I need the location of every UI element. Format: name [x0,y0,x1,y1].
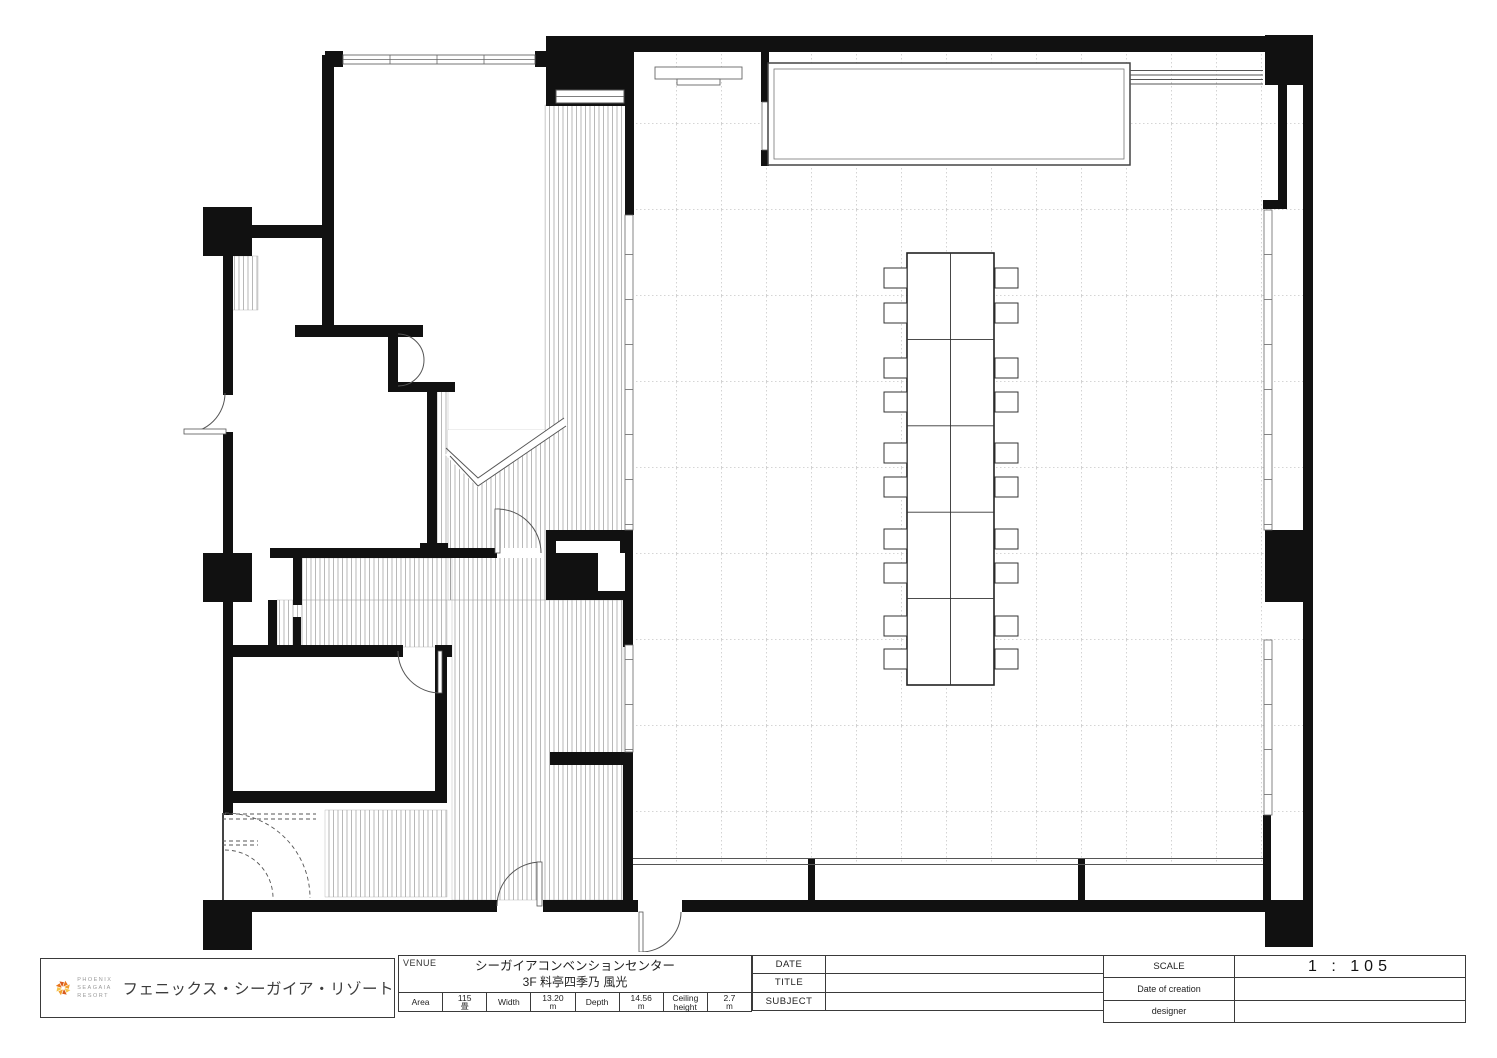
chair [884,443,907,463]
column-bottom-right [1265,900,1313,947]
floor-plan-sheet: PHOENIX SEAGAIA RESORT フェニックス・シーガイア・リゾート… [0,0,1497,1058]
area-label: Area [399,993,443,1012]
venue-name: シーガイアコンベンションセンター 3F 料亭四季乃 風光 [399,959,751,990]
column-bottom-left [203,900,252,950]
scale-value: 1 : 105 [1235,956,1465,977]
chair [884,563,907,583]
date-label: DATE [753,956,826,973]
right-wall [1303,35,1313,947]
chair [884,392,907,412]
top-wall [625,36,1313,52]
room-a-top-wall [295,325,423,337]
chair [995,303,1018,323]
chair [884,358,907,378]
date-of-creation-label: Date of creation [1104,978,1235,999]
title-value [826,974,1104,991]
door-arc-bottom-exit [641,912,681,952]
chair [995,443,1018,463]
left-wall [223,602,233,815]
door-arc-left-wall [185,393,225,433]
chair [995,358,1018,378]
bottom-wall [250,900,497,912]
scale-label: SCALE [1104,956,1235,977]
depth-value: 14.56m [620,993,664,1012]
chair [995,392,1018,412]
meta-table: DATE TITLE SUBJECT [752,955,1105,1011]
logo-box: PHOENIX SEAGAIA RESORT フェニックス・シーガイア・リゾート [40,958,395,1018]
column-mid-right [1265,530,1313,602]
designer-label: designer [1104,1001,1235,1022]
area-value: 115畳 [443,993,487,1012]
subject-value [826,993,1104,1010]
chair [995,649,1018,669]
designer-value [1235,1001,1465,1022]
chair [995,529,1018,549]
room-b-top-wall [223,645,403,657]
door-arc-room-b [398,651,440,693]
ceiling-height-value: 2.7m [708,993,751,1012]
subject-label: SUBJECT [753,993,826,1010]
brand-name-jp: フェニックス・シーガイア・リゾート [122,977,394,999]
left-wall [223,432,233,553]
chair [884,616,907,636]
shutter-dashed-arcs [222,813,316,898]
door-arc-room-a [398,334,424,386]
depth-label: Depth [576,993,620,1012]
column-left-mid [203,553,252,602]
chair [995,268,1018,288]
title-label: TITLE [753,974,826,991]
column-left-upper [203,207,252,256]
brand-name-en: PHOENIX SEAGAIA RESORT [77,976,112,1001]
print-table: SCALE 1 : 105 Date of creation designer [1103,955,1466,1023]
cabinet [655,67,742,79]
phoenix-logo-icon [55,969,71,1007]
chair [995,616,1018,636]
chair [884,649,907,669]
chair [884,303,907,323]
chair [995,563,1018,583]
venue-table: VENUE シーガイアコンベンションセンター 3F 料亭四季乃 風光 Area … [398,955,752,1012]
date-of-creation-value [1235,978,1465,999]
spec-row: Area 115畳 Width 13.20m Depth 14.56m Ceil… [399,993,751,1012]
floor-plan-drawing [0,0,1497,952]
left-wall [223,256,233,395]
room-b-bottom-wall [223,791,447,803]
width-value: 13.20m [531,993,575,1012]
chair [884,268,907,288]
width-label: Width [487,993,531,1012]
chair [995,477,1018,497]
ceiling-height-label: Ceiling height [664,993,708,1012]
chair [884,529,907,549]
date-value [826,956,1104,973]
chair [884,477,907,497]
bottom-wall [682,900,1265,912]
